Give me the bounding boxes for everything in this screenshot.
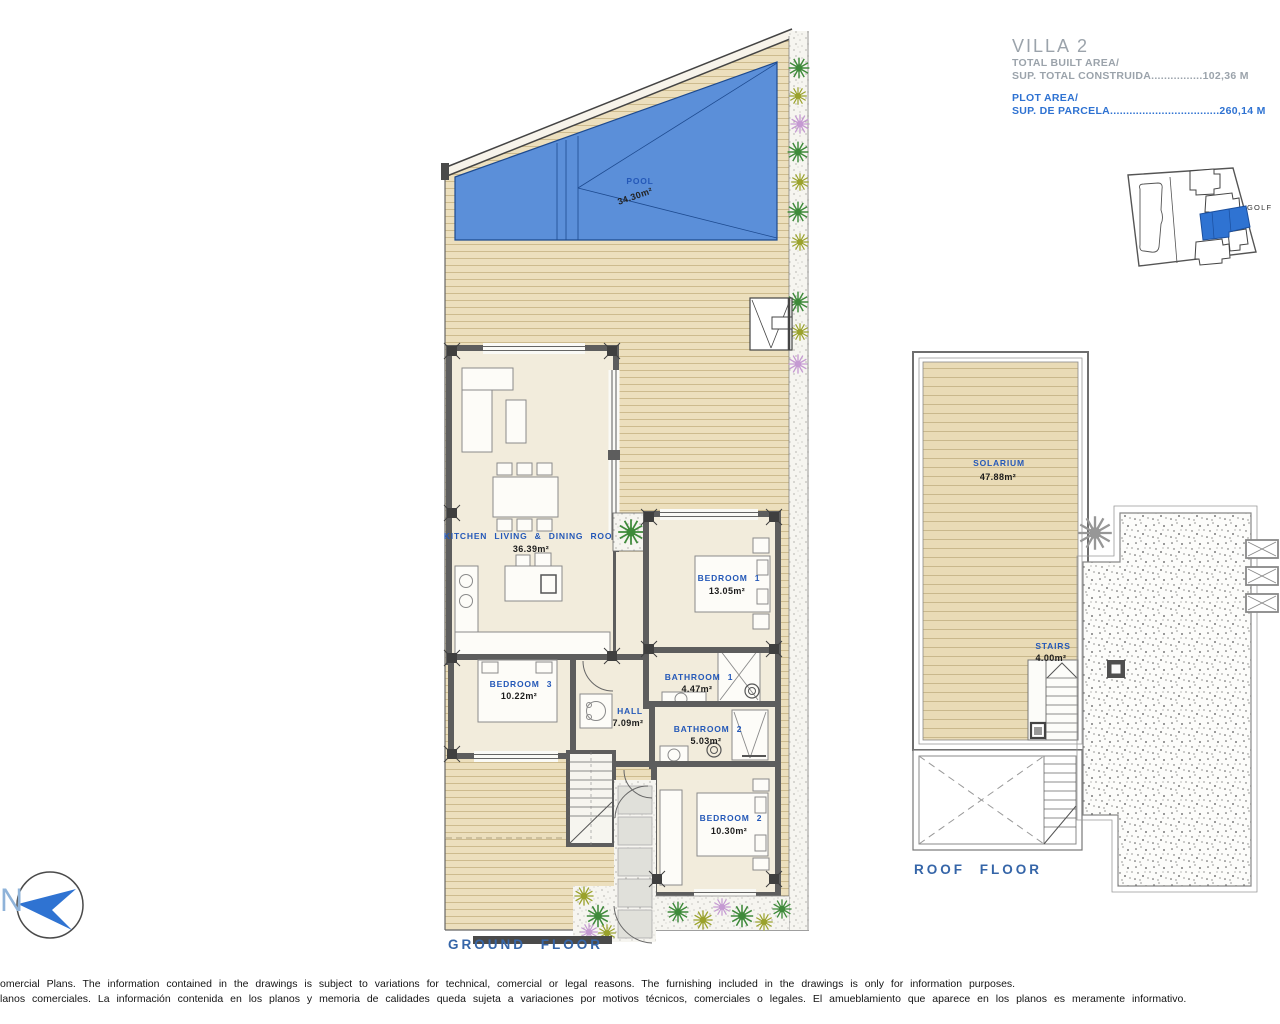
ground-floor-title: GROUND FLOOR bbox=[448, 937, 603, 952]
entry-path bbox=[614, 780, 656, 942]
gravel-roof bbox=[1077, 506, 1257, 892]
golf-label: GOLF bbox=[1247, 203, 1272, 212]
bedroom1-area-label: 13.05m² bbox=[709, 586, 745, 596]
vegetation-strip bbox=[788, 31, 810, 930]
disclaimer: omercial Plans. The information containe… bbox=[0, 977, 1280, 1007]
kitchen-label: KITCHEN LIVING & DINING ROOM bbox=[444, 531, 620, 541]
bedroom3-area-label: 10.22m² bbox=[501, 691, 537, 701]
bedroom3-label: BEDROOM 3 bbox=[490, 679, 553, 689]
solarium-label: SOLARIUM bbox=[973, 458, 1025, 468]
villa-title: VILLA 2 bbox=[1012, 36, 1280, 57]
pool-label: POOL bbox=[626, 176, 653, 186]
roof-void bbox=[913, 750, 1082, 850]
stairs-label: STAIRS bbox=[1035, 641, 1070, 651]
roof-stairs bbox=[1028, 660, 1078, 740]
north-letter: N bbox=[0, 882, 23, 918]
bedroom2-area-label: 10.30m² bbox=[711, 826, 747, 836]
ground-floor-plan: POOL 34.30m² bbox=[441, 29, 810, 952]
built-area-value: SUP. TOTAL CONSTRUIDA................102… bbox=[1012, 70, 1280, 83]
room-bathroom1: BATHROOM 1 4.47m² bbox=[646, 645, 778, 706]
floor-plan-sheet: POOL 34.30m² bbox=[0, 0, 1280, 1024]
built-area-label: TOTAL BUILT AREA/ bbox=[1012, 57, 1280, 70]
bedroom1-label: BEDROOM 1 bbox=[698, 573, 761, 583]
solarium-area-label: 47.88m² bbox=[980, 472, 1016, 482]
north-arrow: N bbox=[0, 872, 83, 938]
plot-area-label: PLOT AREA/ bbox=[1012, 92, 1280, 105]
plot-area-value: SUP. DE PARCELA.........................… bbox=[1012, 105, 1280, 118]
roof-floor-title: ROOF FLOOR bbox=[914, 862, 1042, 877]
hall-label: HALL bbox=[617, 706, 643, 716]
site-location-plan: GOLF bbox=[1128, 168, 1272, 266]
roof-braces bbox=[1246, 540, 1278, 612]
bedroom2-label: BEDROOM 2 bbox=[700, 813, 763, 823]
gate-planting bbox=[573, 886, 616, 942]
room-bedroom2: BEDROOM 2 10.30m² bbox=[654, 764, 778, 900]
floor-plan-drawing: POOL 34.30m² bbox=[0, 0, 1280, 1024]
roof-floor-plan: SOLARIUM 47.88m² STAIRS 4.00m² bbox=[913, 352, 1278, 892]
bathroom2-label: BATHROOM 2 bbox=[674, 724, 743, 734]
bathroom2-area-label: 5.03m² bbox=[691, 736, 722, 746]
disclaimer-line-en: omercial Plans. The information containe… bbox=[0, 977, 1280, 992]
stairs-area-label: 4.00m² bbox=[1036, 653, 1067, 663]
deck-structure bbox=[750, 298, 792, 350]
room-kitchen-living: KITCHEN LIVING & DINING ROOM 36.39m² bbox=[444, 343, 620, 662]
room-bedroom3: BEDROOM 3 10.22m² bbox=[451, 657, 578, 762]
room-bathroom2: BATHROOM 2 5.03m² bbox=[652, 704, 778, 766]
bathroom1-label: BATHROOM 1 bbox=[665, 672, 734, 682]
passage bbox=[616, 552, 646, 662]
disclaimer-line-es: lanos comerciales. La información conten… bbox=[0, 992, 1280, 1007]
bathroom1-area-label: 4.47m² bbox=[682, 684, 713, 694]
kitchen-area-label: 36.39m² bbox=[513, 544, 549, 554]
room-bedroom1: BEDROOM 1 13.05m² bbox=[646, 509, 778, 650]
hall-area-label: 7.09m² bbox=[613, 718, 644, 728]
title-block: VILLA 2 TOTAL BUILT AREA/ SUP. TOTAL CON… bbox=[1012, 36, 1280, 118]
exterior-stairs bbox=[568, 752, 614, 845]
planting-strip bbox=[655, 896, 792, 931]
